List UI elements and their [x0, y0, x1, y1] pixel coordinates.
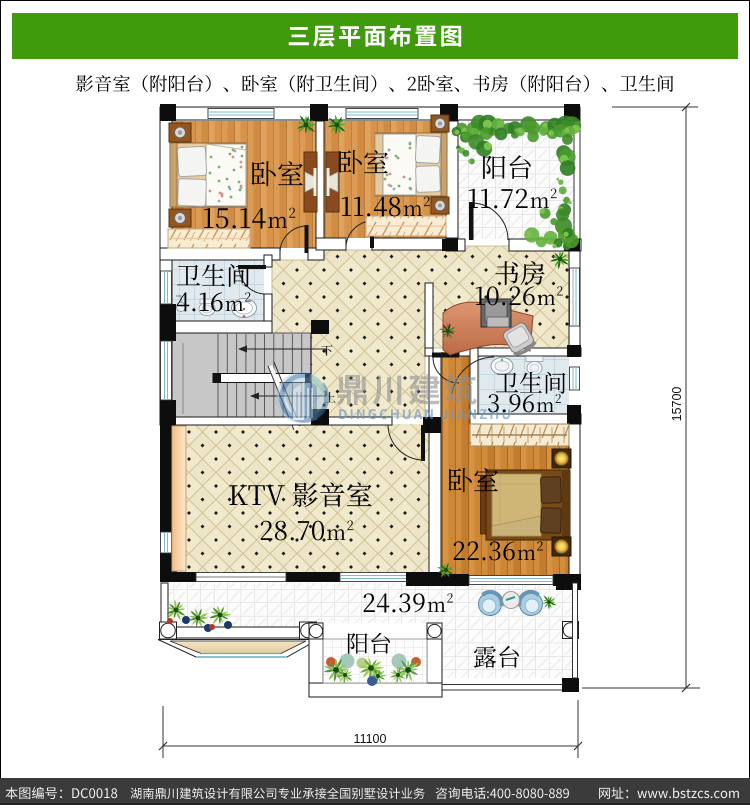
svg-text:11100: 11100	[354, 732, 387, 746]
svg-text:15700: 15700	[670, 387, 684, 422]
